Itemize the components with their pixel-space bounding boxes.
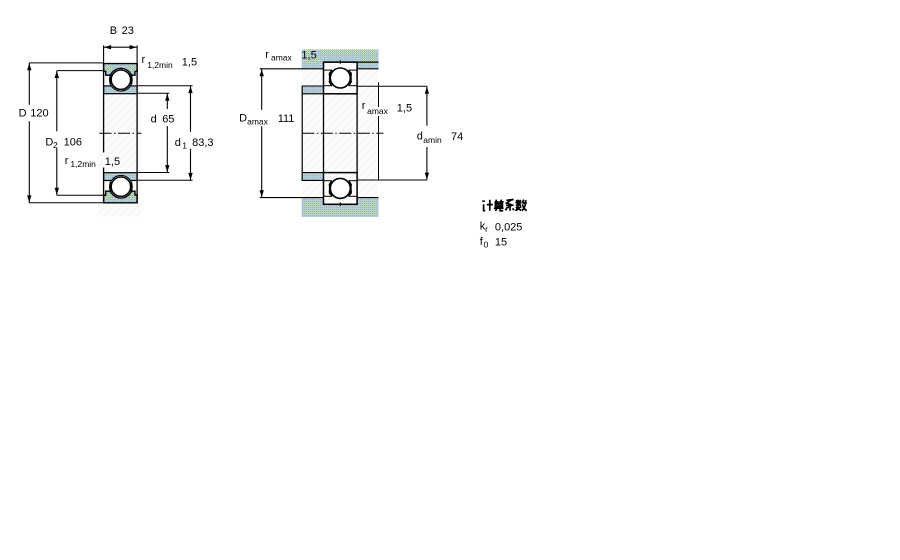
svg-text:D: D xyxy=(19,108,27,120)
svg-text:r: r xyxy=(265,49,269,61)
svg-text:amax: amax xyxy=(271,52,293,62)
svg-text:amax: amax xyxy=(247,117,269,127)
svg-text:d: d xyxy=(417,130,423,142)
svg-text:120: 120 xyxy=(30,108,48,120)
svg-text:83,3: 83,3 xyxy=(192,137,213,149)
svg-text:r: r xyxy=(362,100,366,112)
svg-text:d: d xyxy=(151,113,157,125)
svg-text:1,5: 1,5 xyxy=(397,102,412,114)
svg-text:r: r xyxy=(485,224,488,234)
svg-text:1,5: 1,5 xyxy=(105,156,120,168)
svg-text:0: 0 xyxy=(484,240,489,250)
svg-text:amax: amax xyxy=(367,106,389,116)
svg-text:1,5: 1,5 xyxy=(301,49,316,61)
svg-text:1,2min: 1,2min xyxy=(147,60,173,70)
svg-text:D: D xyxy=(239,112,247,124)
svg-text:r: r xyxy=(65,155,69,167)
svg-text:1,2min: 1,2min xyxy=(70,159,96,169)
svg-text:74: 74 xyxy=(451,131,463,143)
svg-text:111: 111 xyxy=(278,113,295,125)
svg-text:2: 2 xyxy=(53,140,58,150)
svg-text:1,5: 1,5 xyxy=(182,57,197,69)
svg-text:65: 65 xyxy=(162,113,174,125)
svg-text:B: B xyxy=(110,25,117,37)
svg-text:1: 1 xyxy=(182,141,187,151)
svg-text:d: d xyxy=(175,137,181,149)
svg-text:amin: amin xyxy=(423,135,442,145)
svg-text:15: 15 xyxy=(495,237,507,249)
svg-text:r: r xyxy=(142,54,146,66)
svg-text:0,025: 0,025 xyxy=(495,221,523,233)
svg-text:106: 106 xyxy=(64,137,82,149)
svg-text:23: 23 xyxy=(122,25,134,37)
